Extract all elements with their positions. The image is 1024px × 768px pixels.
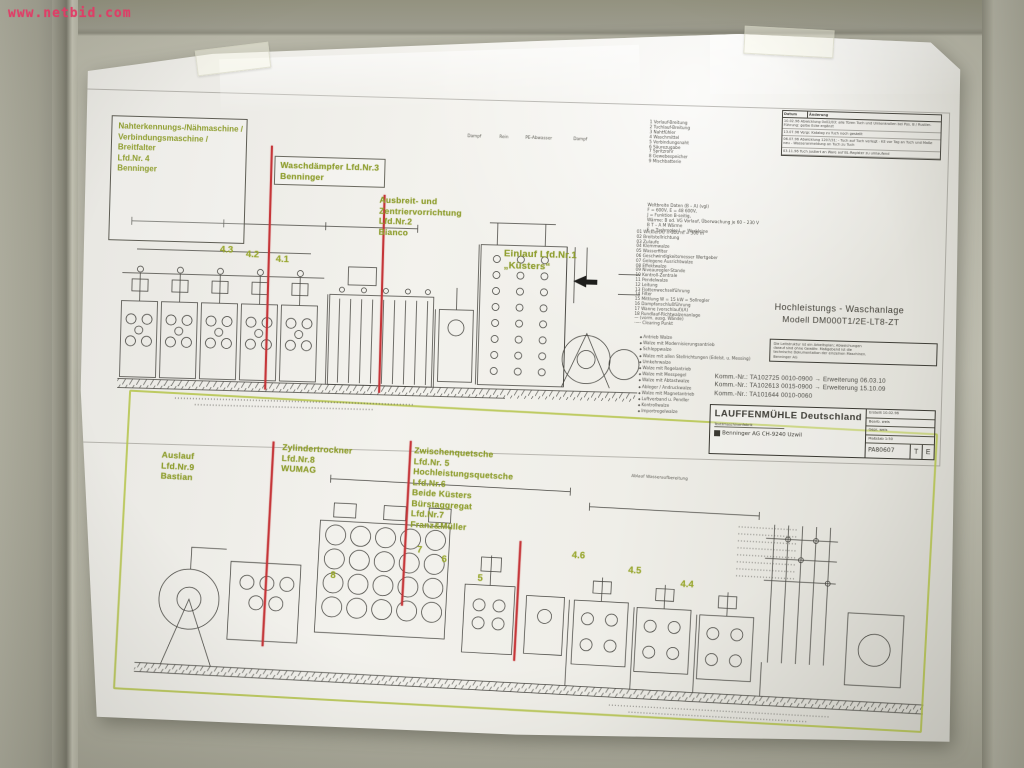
section-number: 5 — [477, 573, 483, 584]
commission-numbers: Komm.-Nr.: TA102725 0010-0900 → Erweiter… — [714, 373, 886, 403]
section-number: 4.2 — [246, 249, 260, 260]
einlauf-label: Einlauf Lfd.Nr.1„Küsters“ — [504, 248, 578, 274]
section-number: 4.5 — [628, 565, 642, 577]
section-number: 4.3 — [220, 244, 234, 255]
einlauf-line: „Küsters“ — [504, 260, 577, 274]
company-name: LAUFFENMÜHLE Deutschland — [714, 408, 862, 423]
pipe-mark: Dampf — [467, 133, 481, 138]
section-number: 6 — [441, 554, 447, 565]
ausbreit-label: Ausbreit- undZentriervorrichtungLfd.Nr.2… — [378, 195, 462, 239]
manufacturer-name: Benninger AG CH-9240 Uzwil — [722, 430, 802, 438]
revision-rows: 10.02.96 Abwicklung 0x02/03: alle Türen … — [782, 118, 941, 159]
left-arrow-icon — [567, 275, 586, 288]
section-number: 4.6 — [572, 550, 586, 562]
section-number: 4.1 — [276, 254, 290, 265]
legend-list-1: 1 Vorlauf-Breitung2 Tuchlauf-Breitung3 N… — [649, 120, 691, 165]
wall-photo: Nahterkennungs-/Nähmaschine /Verbindungs… — [0, 0, 1024, 768]
drawing-number: PA80607 — [866, 443, 910, 458]
pipe-mark: Dampf — [573, 136, 587, 141]
zylindertrockner-label: ZylindertrocknerLfd.Nr.8WUMAG — [281, 442, 353, 477]
plastic-sleeve: Nahterkennungs-/Nähmaschine /Verbindungs… — [70, 34, 962, 746]
section-number: 7 — [417, 544, 423, 555]
manufacturer-logo — [714, 430, 720, 436]
info-rows: Erstellt 10.02.96Bearb. weisGepr. weisMa… — [866, 409, 935, 445]
corner-cell: T — [909, 445, 921, 459]
zwischenquetsche-label: ZwischenquetscheLfd.Nr. 5Hochleistungsqu… — [410, 445, 514, 534]
wall-seam-left — [52, 0, 78, 768]
title-block: LAUFFENMÜHLE Deutschland Textilmaschinen… — [709, 404, 936, 460]
flow-direction-arrow — [567, 275, 597, 288]
wall-panel-left — [0, 0, 54, 768]
seam-label-line: Benninger — [117, 163, 241, 177]
tape-piece — [743, 26, 834, 59]
revision-table: Datum Änderung 10.02.96 Abwicklung 0x02/… — [781, 110, 942, 160]
section-number: 4.4 — [680, 579, 694, 591]
company-subline: Textilmaschinenfabrik — [714, 422, 784, 429]
seam-machine-label-box: Nahterkennungs-/Nähmaschine /Verbindungs… — [108, 115, 247, 244]
pipe-mark: Rein — [499, 134, 508, 139]
wall-panel-right — [994, 0, 1024, 768]
machine-model-title: Hochleistungs - Waschanlage Modell DM000… — [774, 302, 904, 328]
auslauf-label: AuslaufLfd.Nr.9Bastian — [160, 449, 195, 482]
watermark: www.netbid.com — [8, 6, 132, 21]
note-box: Die Leitstruktur ist ein Arbeitsplan; Ab… — [769, 339, 938, 366]
diagram-sheet: Nahterkennungs-/Nähmaschine /Verbindungs… — [50, 34, 962, 768]
waschdaempfer-label: Waschdämpfer Lfd.Nr.3Benninger — [274, 156, 386, 188]
wall-seam-right — [982, 0, 994, 768]
auslauf-line: Bastian — [160, 470, 194, 482]
legend-list-2: 01 Wickler(A) = 300 m = 300 m02 Breitste… — [634, 230, 719, 328]
pipe-mark: PE-Abwasser — [525, 135, 552, 141]
corner-cell: E — [921, 445, 933, 459]
section-number: 8 — [330, 570, 336, 581]
